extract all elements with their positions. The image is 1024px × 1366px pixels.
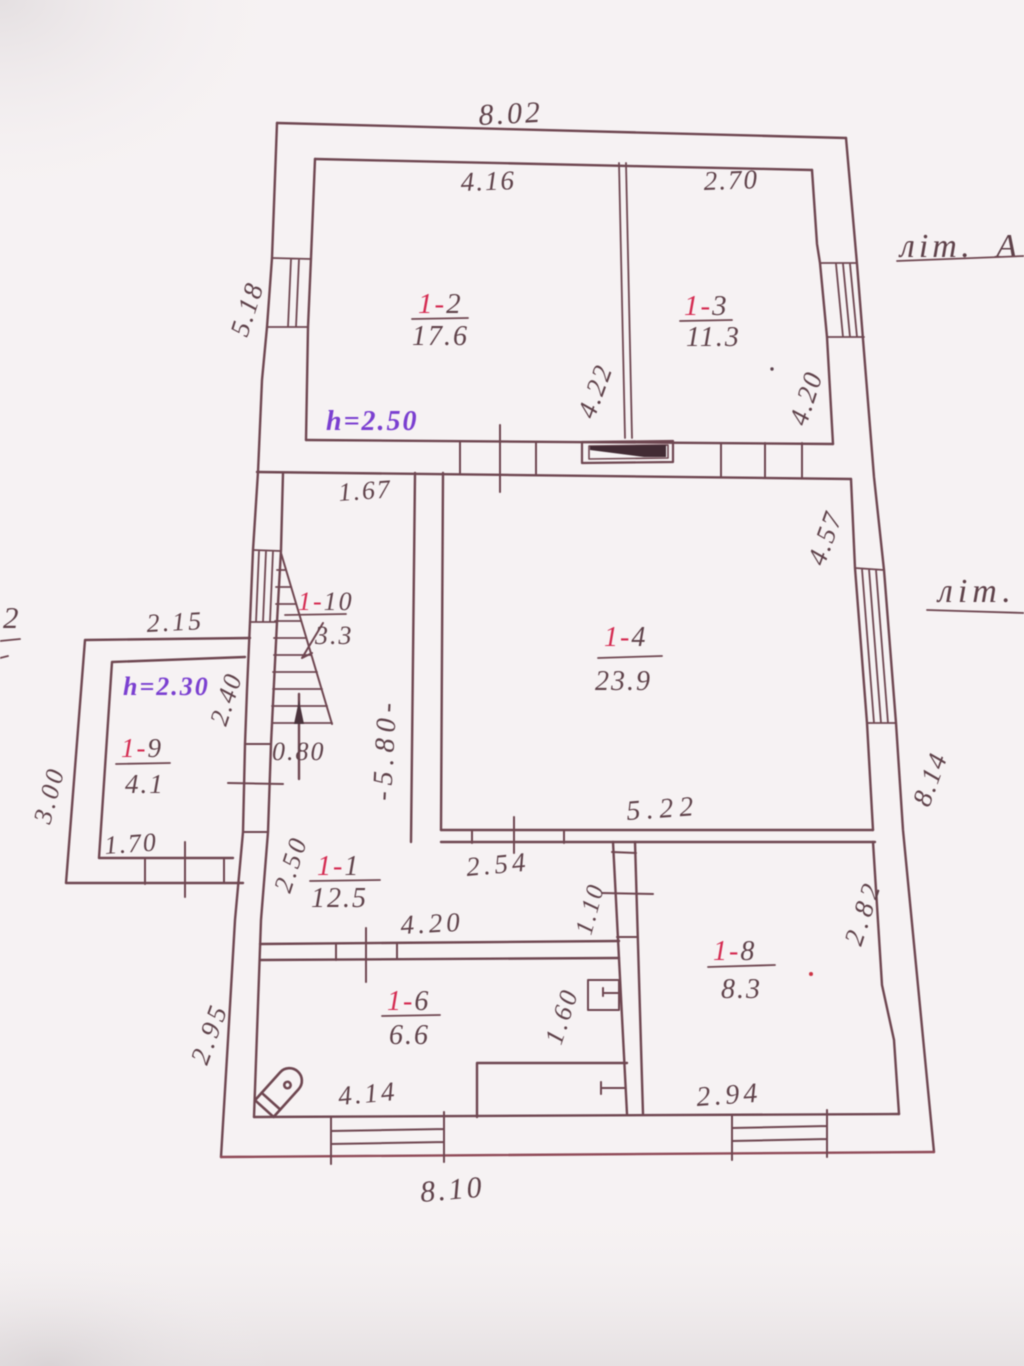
svg-text:1-9: 1-9 bbox=[121, 733, 163, 763]
svg-text:2.15: 2.15 bbox=[146, 606, 205, 638]
svg-text:1-1: 1-1 bbox=[317, 851, 360, 882]
svg-text:1.70: 1.70 bbox=[103, 827, 158, 860]
svg-text:4.22: 4.22 bbox=[571, 360, 618, 422]
svg-text:h=2.50: h=2.50 bbox=[326, 406, 419, 437]
svg-text:1.10: 1.10 bbox=[571, 881, 610, 938]
svg-text:11.3: 11.3 bbox=[686, 322, 741, 353]
svg-text:17.6: 17.6 bbox=[412, 321, 469, 352]
svg-text:літ.: літ. bbox=[936, 573, 1016, 610]
svg-text:8.02: 8.02 bbox=[478, 96, 544, 132]
svg-text:6.6: 6.6 bbox=[389, 1020, 430, 1051]
svg-text:2.40: 2.40 bbox=[204, 669, 248, 729]
svg-text:2.70: 2.70 bbox=[703, 164, 759, 196]
svg-text:1-2: 1-2 bbox=[418, 288, 463, 320]
svg-text:5.18: 5.18 bbox=[224, 278, 270, 340]
svg-text:1-8: 1-8 bbox=[713, 936, 756, 967]
svg-text:0.80: 0.80 bbox=[272, 737, 326, 766]
svg-text:2: 2 bbox=[3, 600, 21, 635]
svg-text:4.57: 4.57 bbox=[801, 507, 848, 569]
svg-text:8.10: 8.10 bbox=[419, 1170, 486, 1208]
svg-text:5.22: 5.22 bbox=[625, 791, 700, 827]
svg-text:12.5: 12.5 bbox=[311, 883, 368, 914]
svg-text:3.00: 3.00 bbox=[28, 764, 71, 828]
svg-text:4.20: 4.20 bbox=[400, 907, 465, 940]
svg-text:-5.80-: -5.80- bbox=[367, 696, 403, 801]
svg-text:1-3: 1-3 bbox=[684, 290, 729, 322]
svg-text:2.50: 2.50 bbox=[268, 832, 313, 896]
svg-text:4.1: 4.1 bbox=[125, 769, 165, 799]
svg-text:4.20: 4.20 bbox=[783, 367, 829, 429]
svg-text:h=2.30: h=2.30 bbox=[123, 672, 210, 701]
svg-text:4.14: 4.14 bbox=[337, 1076, 399, 1111]
svg-text:4.16: 4.16 bbox=[460, 165, 516, 197]
svg-text:1.67: 1.67 bbox=[337, 474, 392, 507]
svg-text:8.14: 8.14 bbox=[906, 748, 953, 810]
svg-text:3.3: 3.3 bbox=[314, 621, 354, 650]
svg-text:1-6: 1-6 bbox=[387, 986, 430, 1017]
svg-text:1.60: 1.60 bbox=[539, 984, 584, 1048]
svg-text:23.9: 23.9 bbox=[595, 666, 652, 697]
svg-text:2.54: 2.54 bbox=[465, 847, 531, 882]
svg-text:1-4: 1-4 bbox=[604, 622, 647, 653]
svg-text:8.3: 8.3 bbox=[721, 974, 762, 1005]
svg-text:1-10: 1-10 bbox=[298, 587, 354, 616]
svg-text:2.94: 2.94 bbox=[695, 1078, 762, 1113]
